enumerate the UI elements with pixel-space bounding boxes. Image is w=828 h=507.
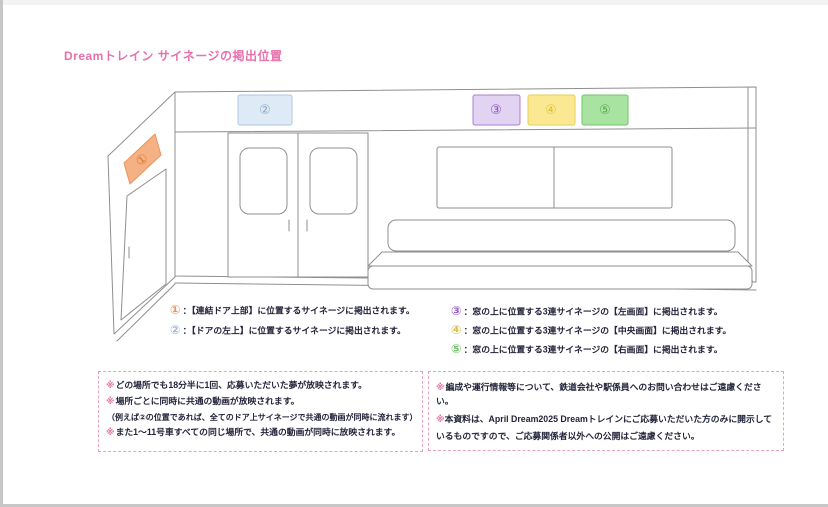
- notes-box-left: ※どの場所でも18分半に1回、応募いただいた夢が放映されます。 ※場所ごとに同時…: [98, 371, 423, 452]
- note-line: ※本資料は、April Dream2025 Dreamトレインにご応募いただいた…: [436, 411, 777, 444]
- bench-seat-front: [368, 266, 752, 289]
- note-text: 場所ごとに同時に共通の動画が放映されます。: [116, 396, 300, 406]
- legend-item-5: ⑤：窓の上に位置する3連サイネージの【右画面】に掲出されます。: [451, 340, 723, 358]
- legend-num-4: ④: [451, 323, 462, 337]
- door-window-right: [310, 148, 357, 214]
- sign-label-4: ④: [545, 103, 557, 118]
- sign-label-5: ⑤: [599, 103, 611, 118]
- note-marker: ※: [436, 414, 445, 424]
- note-line: （例えば②の位置であれば、全てのドア上サイネージで共通の動画が同時に流れます）: [106, 412, 416, 423]
- legend-text-2: ：【ドアの左上】に位置するサイネージに掲出されます。: [183, 325, 406, 335]
- legend-text-1: ：【連結ドア上部】に位置するサイネージに掲出されます。: [183, 305, 415, 315]
- legend-text-5: ：窓の上に位置する3連サイネージの【右画面】に掲出されます。: [464, 344, 723, 354]
- legend-num-1: ①: [170, 303, 181, 317]
- sign-label-3: ③: [490, 103, 502, 118]
- legend-item-3: ③：窓の上に位置する3連サイネージの【左画面】に掲出されます。: [451, 302, 723, 320]
- notes-box-right: ※編成や運行情報等について、鉄道会社や駅係員へのお問い合わせはご遠慮ください。 …: [428, 371, 784, 451]
- legend-item-2: ②：【ドアの左上】に位置するサイネージに掲出されます。: [170, 321, 406, 339]
- legend-item-1: ①：【連結ドア上部】に位置するサイネージに掲出されます。: [170, 301, 415, 319]
- note-line: ※編成や運行情報等について、鉄道会社や駅係員へのお問い合わせはご遠慮ください。: [436, 380, 777, 408]
- note-text: また1〜11号車すべての同じ場所で、共通の動画が同時に放映されます。: [116, 427, 401, 437]
- sign-label-2: ②: [259, 103, 271, 118]
- legend-num-3: ③: [451, 304, 462, 318]
- note-text: どの場所でも18分半に1回、応募いただいた夢が放映されます。: [116, 380, 367, 390]
- note-line: ※場所ごとに同時に共通の動画が放映されます。: [106, 396, 416, 407]
- note-text: 編成や運行情報等について、鉄道会社や駅係員へのお問い合わせはご遠慮ください。: [436, 382, 762, 406]
- note-line: ※どの場所でも18分半に1回、応募いただいた夢が放映されます。: [106, 380, 416, 391]
- note-marker: ※: [106, 427, 115, 437]
- legend-num-2: ②: [170, 323, 181, 337]
- note-marker: ※: [106, 396, 115, 406]
- note-text: （例えば②の位置であれば、全てのドア上サイネージで共通の動画が同時に流れます）: [107, 413, 418, 422]
- legend-num-5: ⑤: [451, 342, 462, 356]
- note-marker: ※: [106, 380, 115, 390]
- legend-item-4: ④：窓の上に位置する3連サイネージの【中央画面】に掲出されます。: [451, 321, 731, 339]
- legend-text-3: ：窓の上に位置する3連サイネージの【左画面】に掲出されます。: [464, 306, 723, 316]
- note-marker: ※: [436, 382, 445, 392]
- door-window-left: [240, 148, 287, 214]
- bench-backrest: [388, 220, 735, 251]
- bench-seat-top: [368, 252, 752, 266]
- note-text: 本資料は、April Dream2025 Dreamトレインにご応募いただいた方…: [436, 414, 772, 441]
- legend-text-4: ：窓の上に位置する3連サイネージの【中央画面】に掲出されます。: [464, 325, 732, 335]
- note-line: ※また1〜11号車すべての同じ場所で、共通の動画が同時に放映されます。: [106, 427, 416, 438]
